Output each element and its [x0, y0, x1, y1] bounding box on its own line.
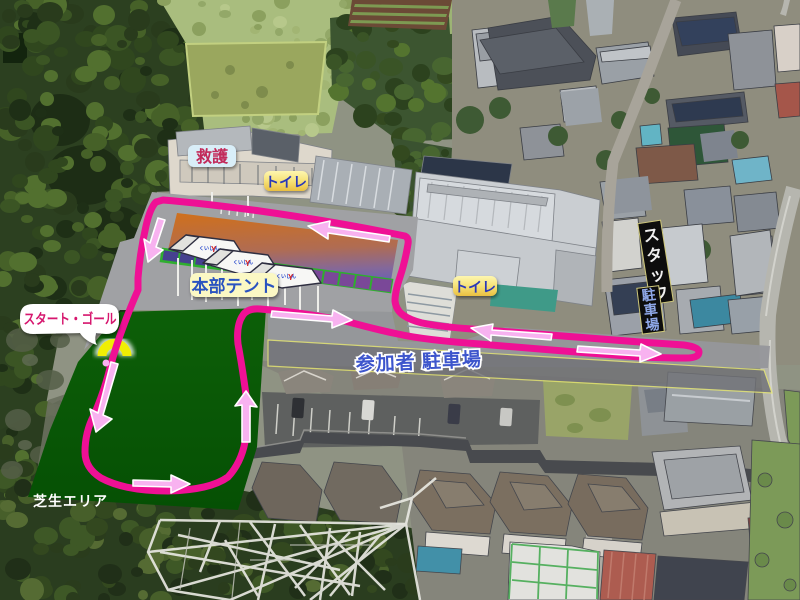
svg-text:トイレ: トイレ: [454, 279, 496, 295]
svg-text:場: 場: [644, 316, 660, 334]
svg-text:Y: Y: [288, 273, 294, 282]
svg-text:タ: タ: [645, 245, 664, 265]
svg-text:Y: Y: [211, 245, 217, 254]
svg-text:ス: ス: [642, 227, 660, 246]
svg-text:トイレ: トイレ: [265, 174, 307, 190]
svg-text:救護: 救護: [196, 147, 229, 166]
svg-text:芝生エリア: 芝生エリア: [33, 493, 108, 509]
svg-text:スタート・ゴール: スタート・ゴール: [24, 311, 117, 327]
svg-text:本部テント: 本部テント: [192, 276, 277, 296]
svg-text:ッ: ッ: [648, 266, 666, 285]
svg-text:Y: Y: [245, 259, 251, 268]
